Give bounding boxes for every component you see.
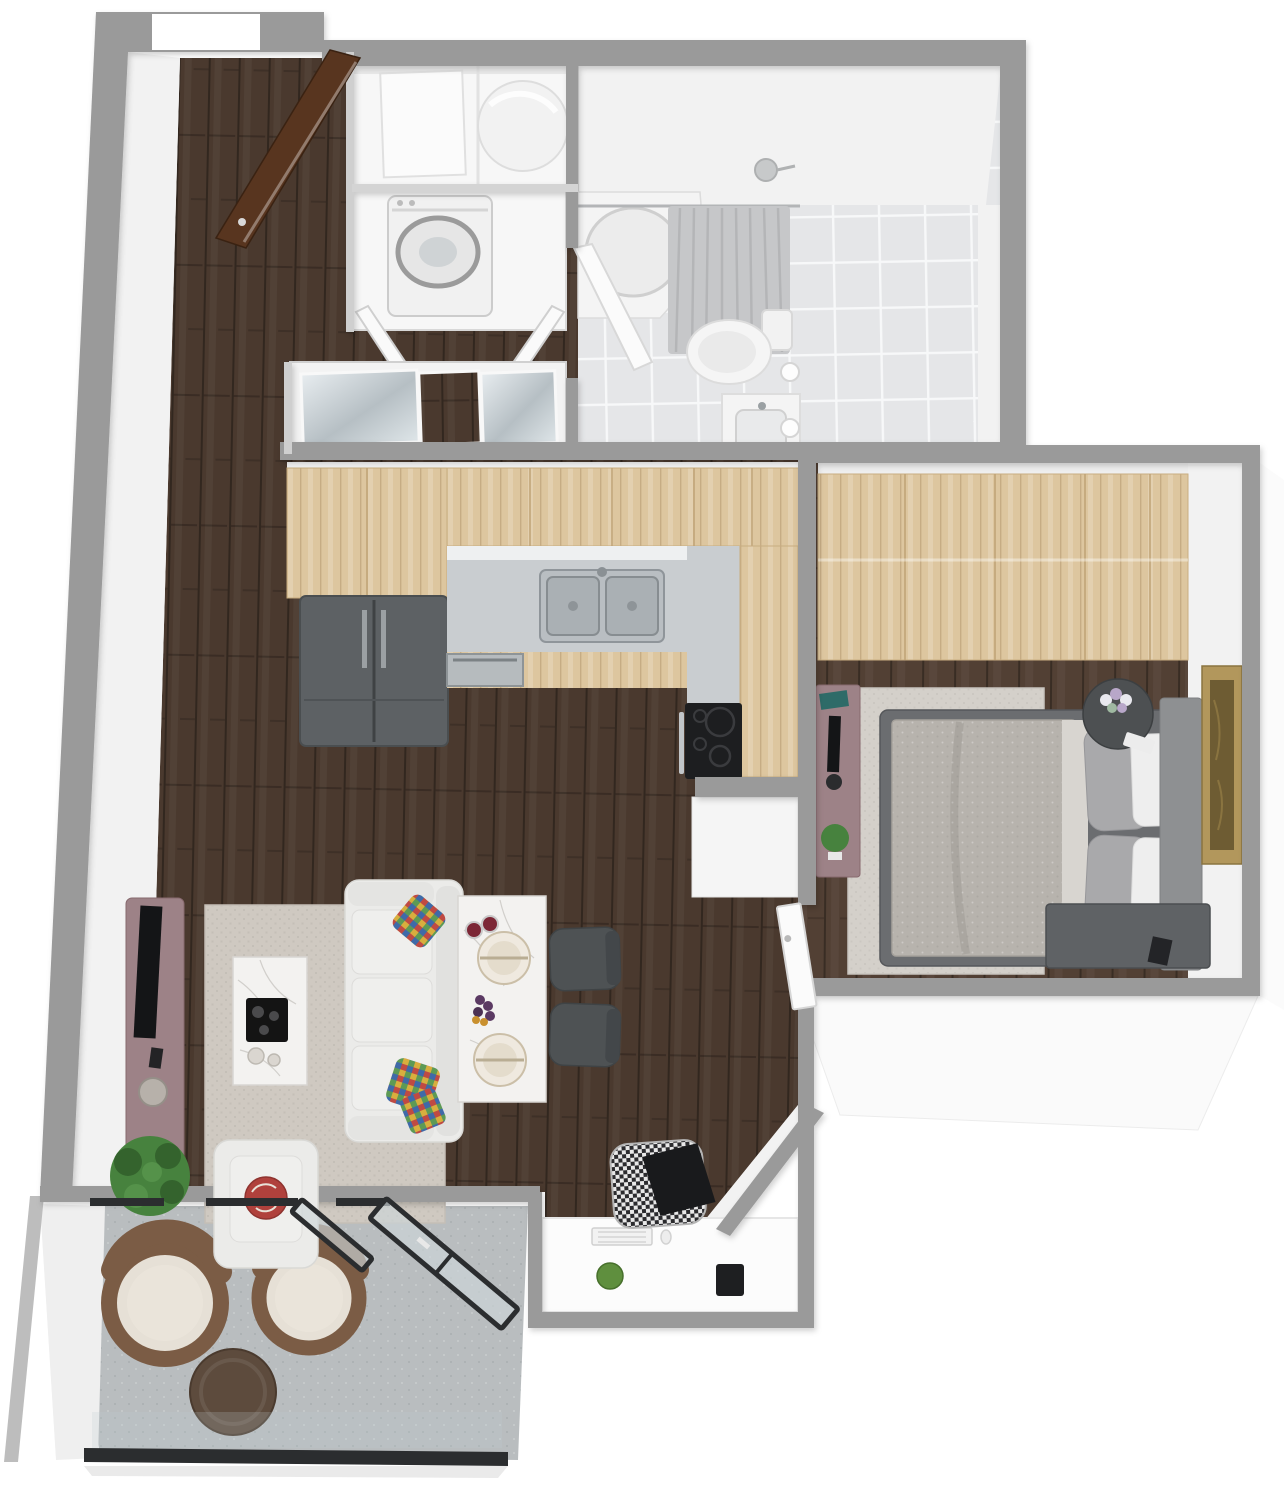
storage-box — [380, 71, 466, 178]
wall-alcove-east — [798, 996, 814, 1328]
place-setting-bottom — [474, 1034, 526, 1086]
dishwasher — [447, 654, 523, 686]
keyboard — [592, 1228, 652, 1245]
room-utility — [352, 58, 578, 190]
mouse — [661, 1230, 671, 1244]
green-apple — [597, 1263, 623, 1289]
bedroom-desk — [816, 685, 860, 877]
wall-top-main — [322, 40, 1026, 66]
wall-stove-stub-cap — [695, 777, 800, 797]
wall-cabinets — [447, 468, 800, 546]
place-setting-top — [478, 932, 530, 984]
mirror-doors — [301, 370, 557, 446]
console-vase — [139, 1078, 167, 1106]
room-hall-closet — [290, 362, 566, 454]
refrigerator — [300, 596, 448, 746]
tv-console — [126, 898, 184, 1178]
wall-bedroom-north — [814, 445, 1260, 463]
wardrobe — [818, 474, 1188, 660]
wall-bathroom-east — [1000, 40, 1026, 455]
right-run-wood — [740, 546, 798, 777]
wall-bedroom-south — [798, 978, 1260, 996]
wall-kitchen-north — [280, 442, 578, 460]
wall-closet-west — [284, 362, 292, 454]
floor-plan-canvas — [0, 0, 1284, 1500]
balcony-outer-edge — [4, 1196, 44, 1462]
cooktop-range — [679, 703, 742, 779]
pen-cup — [716, 1264, 744, 1296]
balcony-railing — [84, 1412, 508, 1478]
wicker-chair-left — [109, 1232, 221, 1359]
wall-laundry-divider — [352, 184, 578, 192]
framed-artwork — [1202, 666, 1242, 864]
wall-living-bedroom — [798, 455, 816, 905]
floor-plan-page — [0, 0, 1284, 1500]
wall-bedroom-east — [1242, 445, 1260, 996]
entry-door-opening — [152, 14, 260, 50]
bathroom-upper-wall-face — [578, 58, 1002, 205]
room-bedroom — [816, 462, 1242, 974]
wall-bathroom-west-lower — [566, 378, 578, 448]
washer-dryer — [388, 196, 492, 316]
sofa — [345, 880, 463, 1142]
bedroom-south-exterior-face — [798, 996, 1258, 1130]
bathroom-east-wall-face — [978, 205, 1002, 455]
apartment-east-exterior-face — [1260, 463, 1284, 1010]
wall-alcove-west — [528, 1192, 542, 1328]
wall-alcove-south — [528, 1312, 814, 1328]
counter-right-run — [687, 546, 740, 705]
stove-stub-wall-face — [692, 797, 798, 897]
dining-table — [458, 896, 546, 1102]
counter-back-edge — [447, 546, 687, 560]
foot-bench — [1046, 904, 1210, 968]
wall-bathroom-west-upper — [566, 52, 578, 248]
coffee-table — [233, 957, 307, 1085]
door-handle — [238, 218, 246, 226]
kitchen-sink — [540, 567, 664, 642]
desk-chair — [609, 1138, 717, 1229]
wardrobe-top-edge — [818, 462, 1188, 474]
